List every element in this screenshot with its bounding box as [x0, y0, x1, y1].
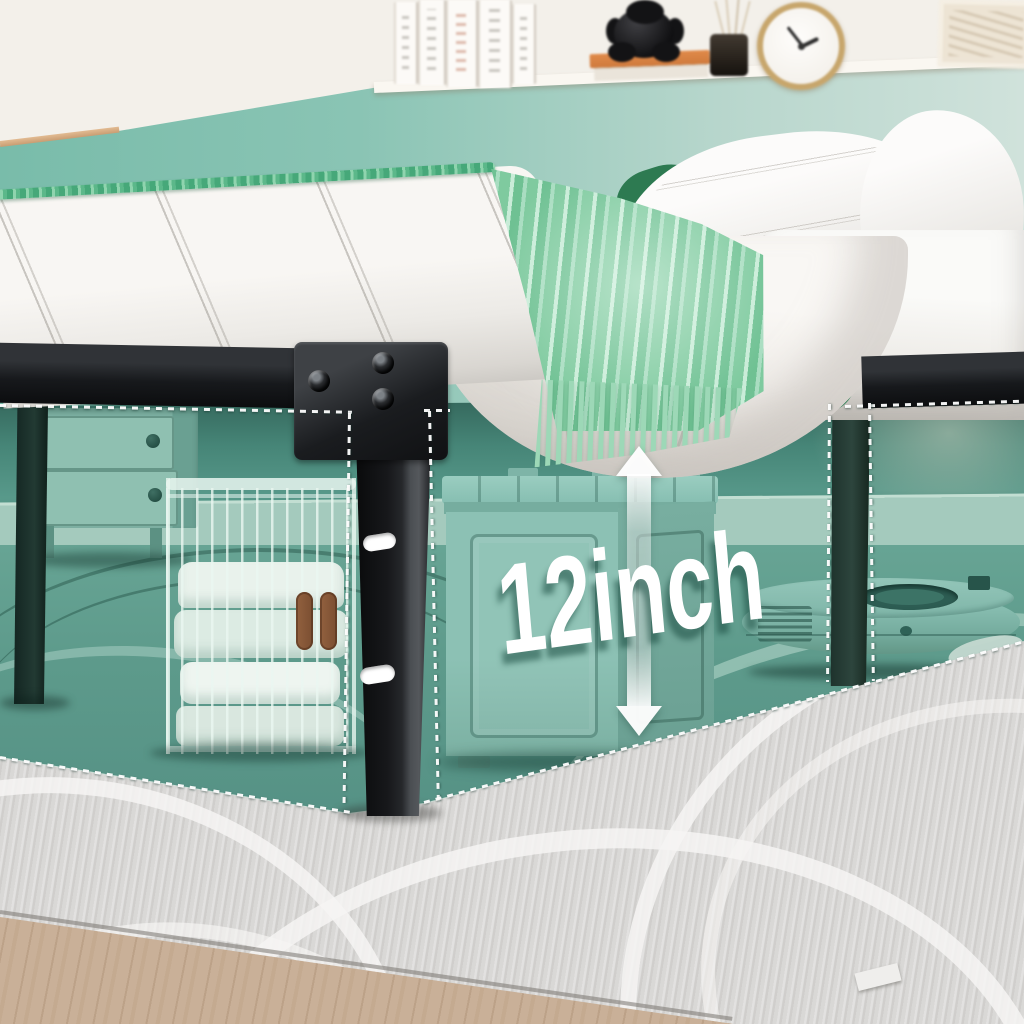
drawer-knob [148, 488, 162, 502]
black-figurine [602, 0, 690, 64]
bolt [308, 370, 330, 392]
book [418, 0, 446, 85]
arrow-down-icon [616, 706, 662, 736]
leather-handle [296, 592, 313, 650]
vacuum-sensor [968, 576, 990, 590]
leather-handle [320, 592, 337, 650]
product-image: 12inch [0, 0, 1024, 1024]
corner-bracket [294, 342, 448, 460]
book [394, 2, 418, 84]
book [446, 0, 478, 87]
book [478, 0, 512, 88]
drawer-knob [146, 434, 160, 448]
vacuum-dust-bin [860, 584, 958, 610]
bolt [372, 352, 394, 374]
wire-storage-basket [166, 478, 356, 754]
arrow-up-icon [616, 446, 662, 476]
reed-diffuser [706, 0, 758, 86]
book [512, 4, 536, 84]
framed-art [937, 0, 1024, 69]
clock [757, 2, 845, 90]
rear-left-leg [14, 406, 48, 704]
bolt [372, 388, 394, 410]
crate-lid [442, 476, 718, 504]
shelf-decor [0, 0, 1024, 120]
rear-right-leg [830, 402, 870, 686]
